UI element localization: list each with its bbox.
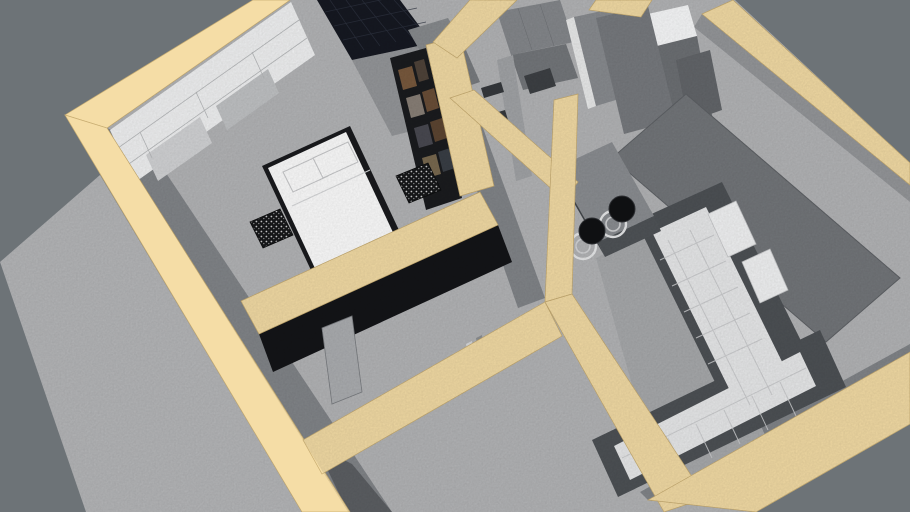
3d-viewport[interactable] — [0, 0, 910, 512]
floorplan-scene — [0, 0, 910, 512]
